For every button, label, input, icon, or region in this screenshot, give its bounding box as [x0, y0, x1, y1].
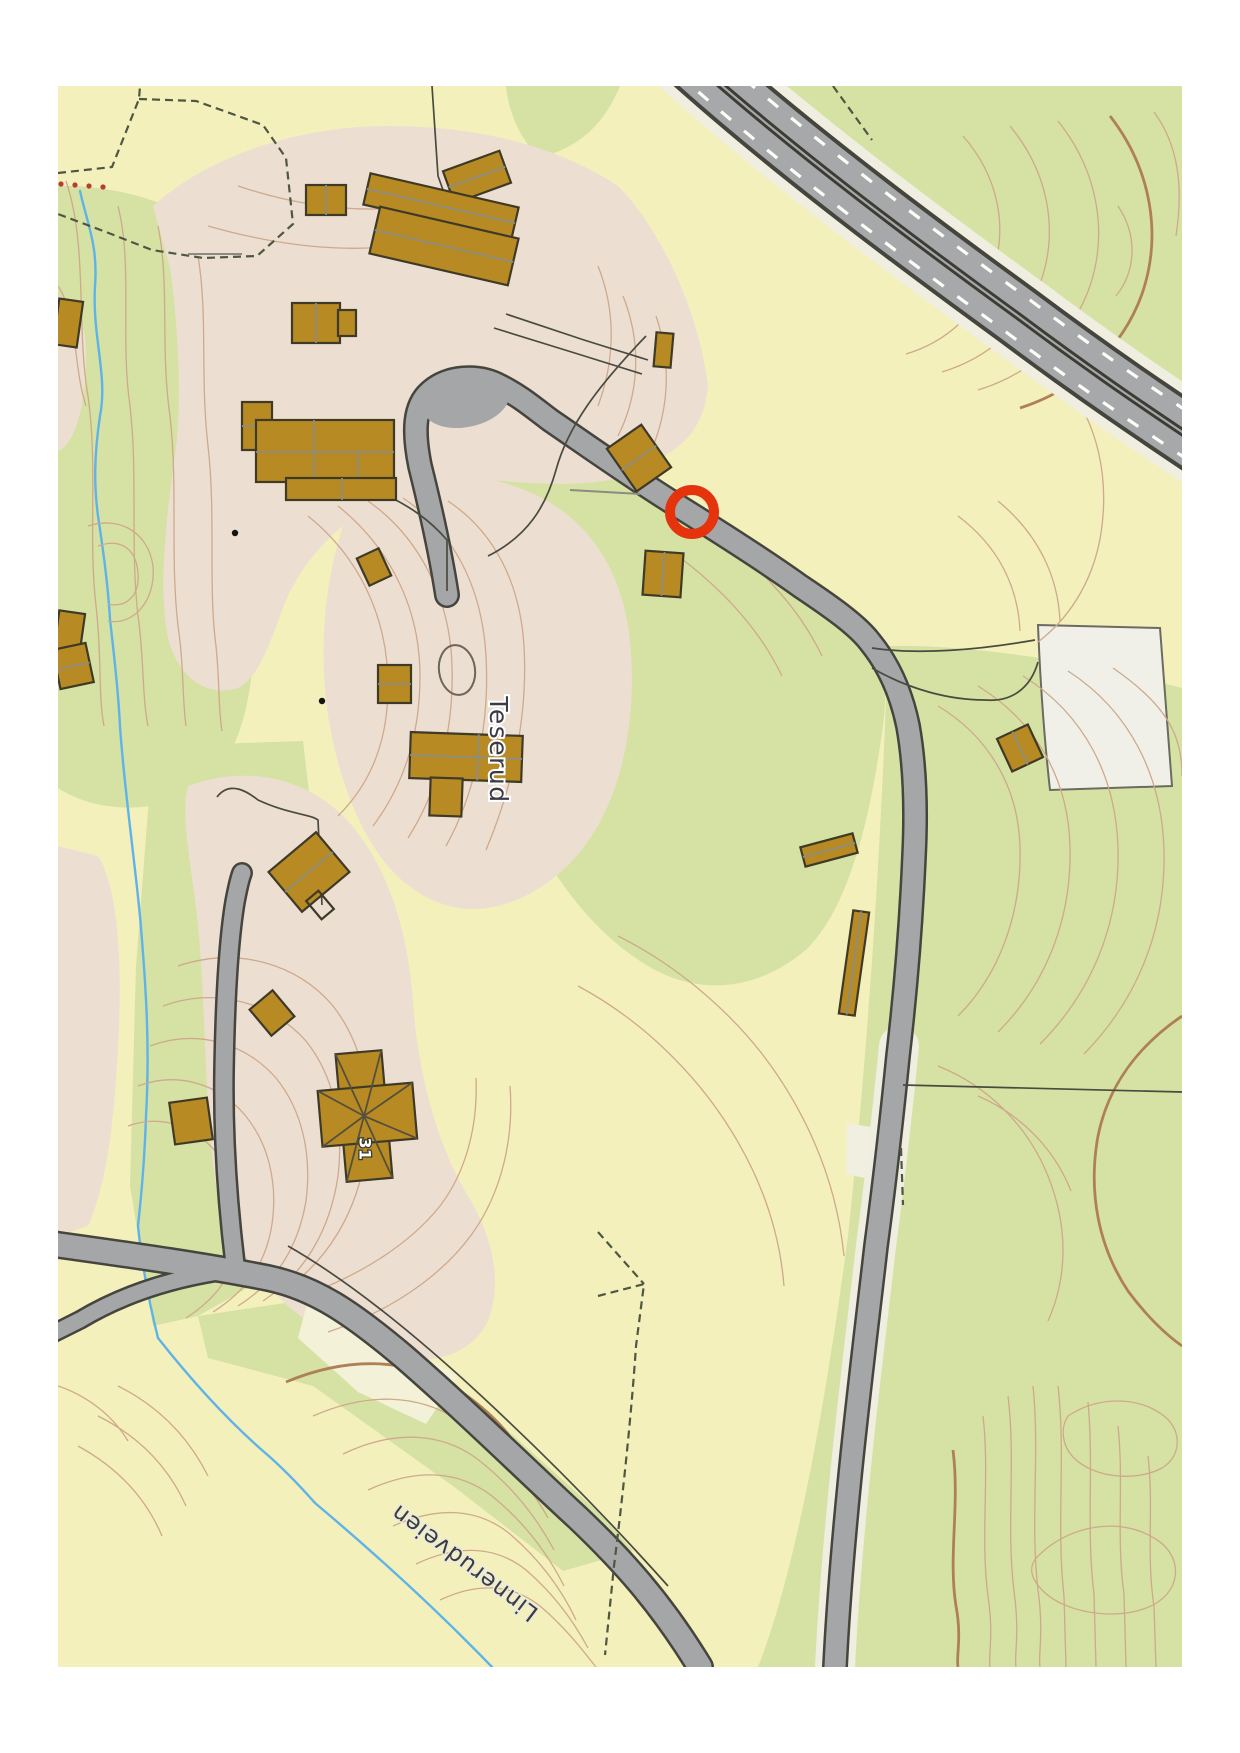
black-point-feature: [232, 530, 238, 536]
terrain-gravel-white-area: [1038, 625, 1172, 790]
red-dot-path-marker: [72, 182, 77, 187]
building-footprint: [169, 1098, 212, 1145]
building-footprint: [256, 420, 394, 482]
red-dot-path-marker: [100, 184, 105, 189]
building-footprint: [338, 310, 356, 336]
red-dot-path-marker: [86, 183, 91, 188]
black-point-feature: [319, 698, 325, 704]
map-label-teserud: Teserud: [484, 695, 513, 803]
map-label-house-number-31: 31: [356, 1137, 375, 1160]
map-svg: TeserudLinnerudveien31: [58, 86, 1182, 1667]
building-house-mid-north-annex: [338, 310, 356, 336]
red-dot-path-marker: [58, 181, 63, 186]
building-outbuilding-west-of-teserud: [378, 665, 411, 703]
building-farm-complex-south-strip: [286, 478, 396, 500]
building-footprint: [429, 777, 462, 816]
topo-map-canvas[interactable]: TeserudLinnerudveien31: [58, 86, 1182, 1667]
building-shed-top-small: [306, 185, 346, 215]
building-footprint: [654, 332, 674, 367]
building-farm-complex-main: [256, 420, 394, 482]
building-square-building-junction: [169, 1098, 212, 1145]
building-building-mid-green: [643, 551, 684, 598]
building-small-building-north-of-marker: [654, 332, 674, 367]
building-house-mid-north: [292, 303, 340, 343]
target-marker[interactable]: [665, 485, 719, 539]
building-footprint: [286, 478, 396, 500]
building-teserud-south-wing: [429, 777, 462, 816]
